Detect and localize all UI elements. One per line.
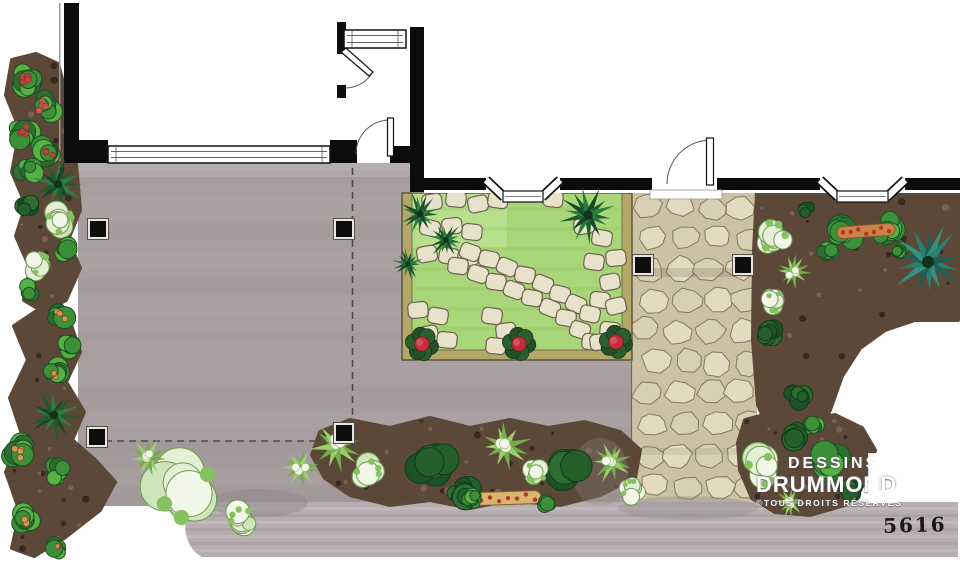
plant-shrub-dark [15,195,39,216]
stepping-stone [436,331,458,349]
stepping-stone [447,257,469,276]
plant-shrub [2,433,34,467]
bay-window [820,180,905,202]
door [650,138,722,199]
post [88,219,109,240]
landscape-plan: DESSINS DRUMMOND ©TOUS DROITS RÉSERVÉS 5… [0,0,960,569]
window [108,146,330,163]
post [87,427,108,448]
door [356,118,394,156]
plant-flowerbar [475,490,541,505]
window [344,30,406,48]
stepping-stone [591,228,613,247]
post [334,219,355,240]
post [334,423,355,444]
plan-number: 5616 [883,512,947,538]
plant-shrub [538,495,556,513]
drummond-d-icon [868,453,910,503]
stepping-stone [605,249,627,267]
post [733,255,754,276]
stepping-stone [583,253,605,272]
brand-watermark: DESSINS DRUMMOND ©TOUS DROITS RÉSERVÉS [756,456,916,508]
stepping-stone [481,307,503,326]
stepping-stone [461,223,483,241]
plant-shrub [48,303,76,328]
stepping-stone [521,288,543,307]
stepping-stone [407,301,429,319]
post [633,255,654,276]
windows [108,30,406,163]
stepping-stone [427,306,449,325]
stepping-stone [599,272,621,291]
door [341,48,373,88]
